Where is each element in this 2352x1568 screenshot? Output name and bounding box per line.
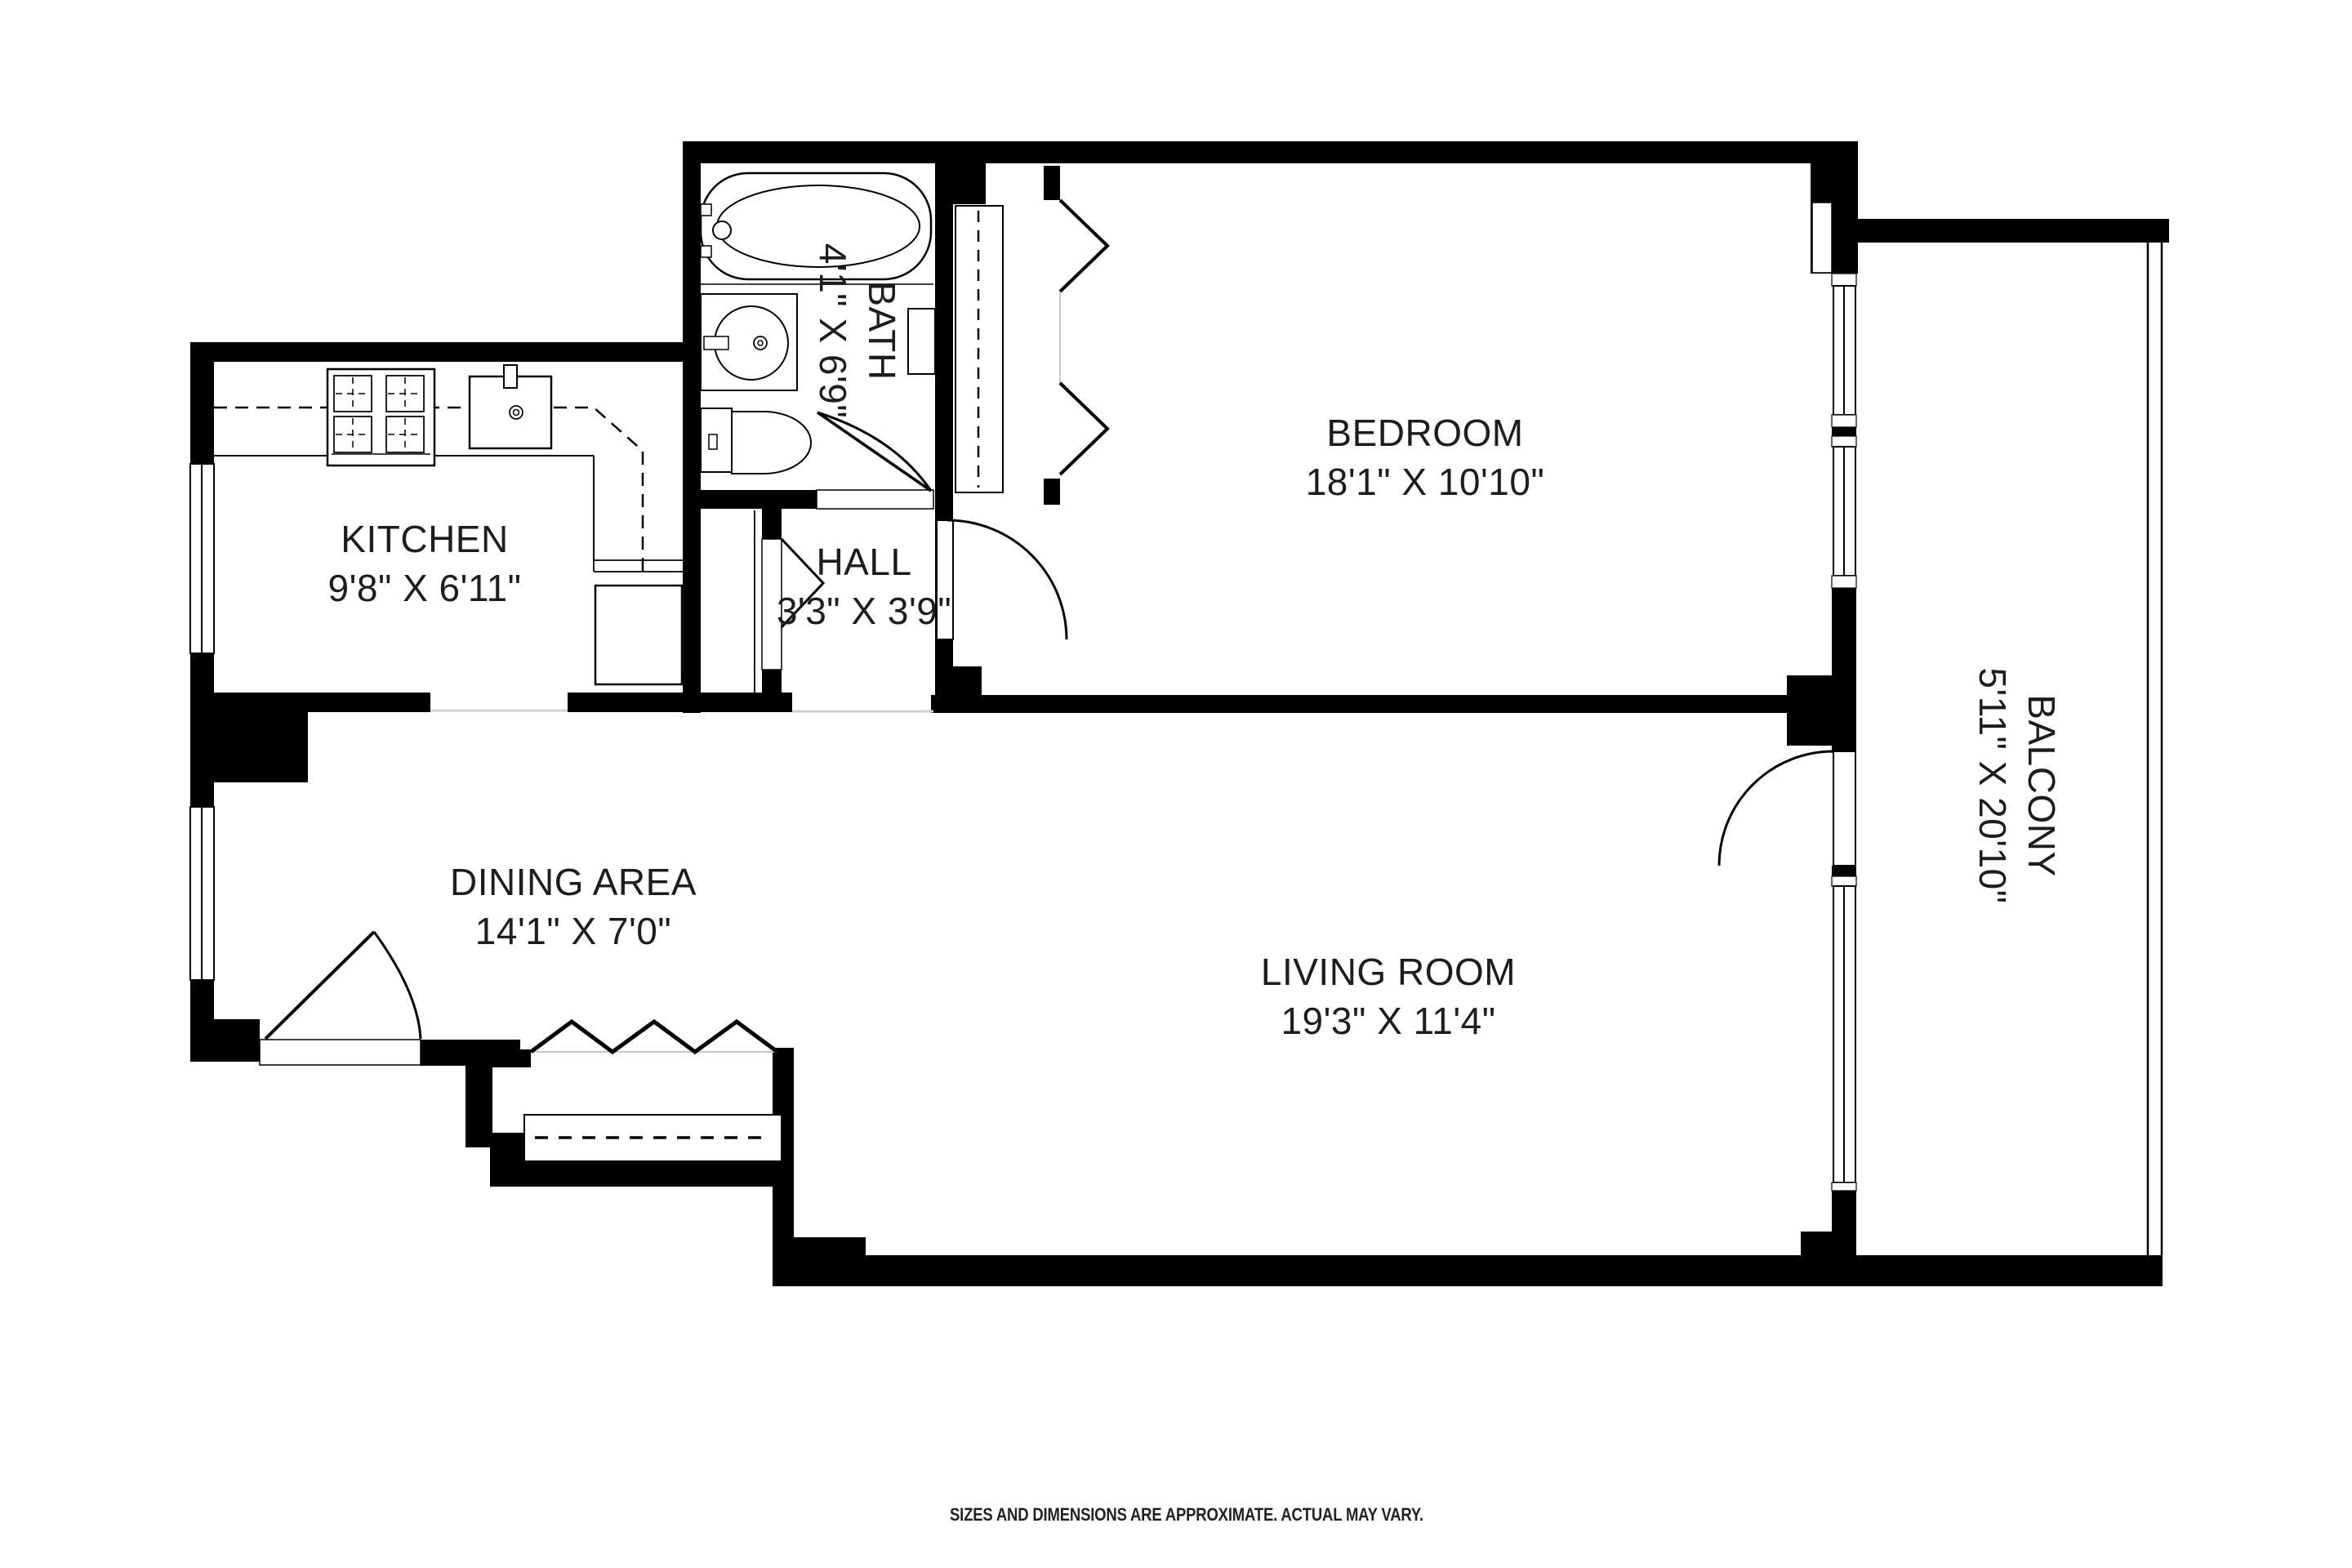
- disclaimer-text: SIZES AND DIMENSIONS ARE APPROXIMATE. AC…: [950, 1504, 1423, 1526]
- room-dims: 14'1" X 7'0": [450, 906, 697, 955]
- wall-hall-step: [953, 666, 982, 695]
- wall-east-pier: [1787, 675, 1856, 746]
- wall-bay-stub: [492, 1049, 531, 1067]
- wall-bottom: [794, 1255, 2163, 1286]
- room-name: HALL: [777, 537, 951, 586]
- stove: [327, 369, 434, 465]
- wall-east-below-living-window: [1832, 1191, 1856, 1258]
- room-label-bedroom: BEDROOM 18'1" X 10'10": [1306, 408, 1545, 506]
- bath-vanity-sink: [701, 294, 797, 390]
- bedroom-window-1: [1832, 274, 1856, 427]
- room-label-kitchen: KITCHEN 9'8" X 6'11": [328, 514, 522, 612]
- kitchen-sink: [470, 365, 551, 448]
- wall-hallcloset-post-bottom: [762, 670, 782, 694]
- room-name: LIVING ROOM: [1261, 947, 1516, 996]
- wall-bay-bottom: [490, 1161, 776, 1187]
- wall-closet-post-bottom: [1044, 479, 1060, 505]
- wall-balcony-top: [1858, 219, 2169, 243]
- kitchen-window: [190, 464, 214, 653]
- balcony-railing: [2148, 243, 2162, 1255]
- wall-kitchen-bottom-east: [568, 693, 792, 712]
- room-name: KITCHEN: [328, 514, 522, 563]
- refrigerator: [595, 586, 682, 684]
- room-dims: 19'3" X 11'4": [1261, 996, 1516, 1045]
- wall-bottom-step-west: [794, 1237, 866, 1255]
- wall-bath-west: [683, 141, 701, 713]
- room-dims: 4'1" X 6'9": [808, 243, 857, 418]
- wall-kitchen-west-upper: [190, 342, 214, 464]
- wall-bay-leg: [465, 1066, 492, 1147]
- room-label-hall: HALL 3'3" X 3'9": [777, 537, 951, 635]
- wall-bath-bottom: [683, 490, 817, 509]
- bedroom-closet-bifold-doors: [1060, 200, 1107, 474]
- room-label-balcony: BALCONY 5'11" X 20'10": [1968, 667, 2066, 903]
- room-dims: 9'8" X 6'11": [328, 563, 522, 612]
- room-dims: 5'11" X 20'10": [1968, 667, 2017, 903]
- room-label-living: LIVING ROOM 19'3" X 11'4": [1261, 947, 1516, 1045]
- bay-sawtooth-windows: [531, 1022, 777, 1052]
- wall-kitchen-top: [190, 342, 683, 362]
- ne-wall-niche: [1812, 203, 1832, 273]
- walls: [190, 141, 2169, 1286]
- wall-west-mid: [190, 653, 214, 807]
- room-name: BALCONY: [2017, 667, 2066, 903]
- wall-east-below-bed-windows: [1832, 588, 1856, 675]
- wall-window-mullion: [1832, 427, 1856, 436]
- bedroom-door: [937, 520, 1067, 639]
- bath-door: [817, 412, 933, 509]
- wall-hallcloset-post-top: [762, 509, 782, 539]
- dining-window: [190, 807, 214, 980]
- bath-shelf: [908, 309, 935, 374]
- room-name: BEDROOM: [1306, 408, 1545, 457]
- wall-west-lower: [190, 980, 214, 1062]
- living-room-window: [1832, 876, 1856, 1191]
- room-name: BATH: [857, 243, 906, 418]
- wall-se-step: [1801, 1232, 1832, 1258]
- room-label-dining: DINING AREA 14'1" X 7'0": [450, 857, 697, 955]
- floor-plan-page: KITCHEN 9'8" X 6'11" BATH 4'1" X 6'9" HA…: [0, 0, 2352, 1568]
- room-dims: 3'3" X 3'9": [777, 586, 951, 635]
- bay-planter: [524, 1115, 782, 1161]
- wall-dining-pier: [214, 712, 308, 782]
- room-name: DINING AREA: [450, 857, 697, 906]
- bedroom-window-2: [1832, 436, 1856, 588]
- entry-door: [260, 932, 421, 1065]
- balcony-door: [1719, 751, 1855, 866]
- room-label-bath: BATH 4'1" X 6'9": [808, 243, 906, 418]
- wall-kitchen-bottom-west: [190, 693, 430, 712]
- room-dims: 18'1" X 10'10": [1306, 457, 1545, 506]
- wall-bedroom-living-divider: [931, 695, 1833, 713]
- toilet: [701, 408, 811, 474]
- wall-top: [684, 141, 1858, 163]
- wall-closet-post-top: [1044, 166, 1060, 200]
- wall-bedroom-nw-chunk: [935, 163, 986, 204]
- wall-dining-step: [214, 1019, 260, 1062]
